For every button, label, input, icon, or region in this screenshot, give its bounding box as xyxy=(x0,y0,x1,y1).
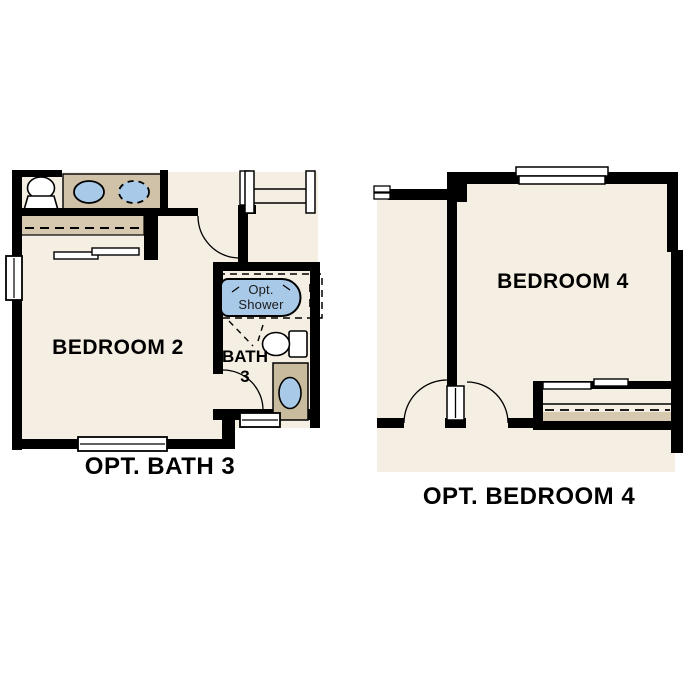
floorplan-sheet: BEDROOM 2 BATH 3 Opt. Shower OPT. BATH 3… xyxy=(0,0,687,687)
door-jamb xyxy=(447,386,464,420)
room-label-bath3-line1: BATH xyxy=(210,347,280,367)
wall-break-icon xyxy=(374,186,390,199)
room-label-bath3-line2: 3 xyxy=(210,367,280,387)
vanity-counter xyxy=(63,174,163,210)
vanity-sink-icon xyxy=(279,378,301,409)
room-label-bedroom4: BEDROOM 4 xyxy=(463,270,663,294)
sliding-door-panel xyxy=(92,248,139,255)
optional-sink-icon xyxy=(119,181,149,203)
toilet-icon xyxy=(24,177,58,210)
window xyxy=(240,413,280,427)
room-label-bath3: BATH 3 xyxy=(210,347,280,387)
window xyxy=(78,437,167,451)
window xyxy=(6,256,22,300)
plan-caption-opt-bedroom-4: OPT. BEDROOM 4 xyxy=(379,483,679,511)
window xyxy=(516,167,608,184)
plan-caption-opt-bath-3: OPT. BATH 3 xyxy=(20,453,300,481)
optional-shower-note: Opt. Shower xyxy=(222,282,300,312)
optional-shower-note-line1: Opt. xyxy=(222,282,300,297)
room-label-bedroom2: BEDROOM 2 xyxy=(18,336,218,360)
sink-icon xyxy=(74,181,104,203)
plan-opt-bedroom-4 xyxy=(374,167,683,472)
optional-shower-note-line2: Shower xyxy=(222,297,300,312)
